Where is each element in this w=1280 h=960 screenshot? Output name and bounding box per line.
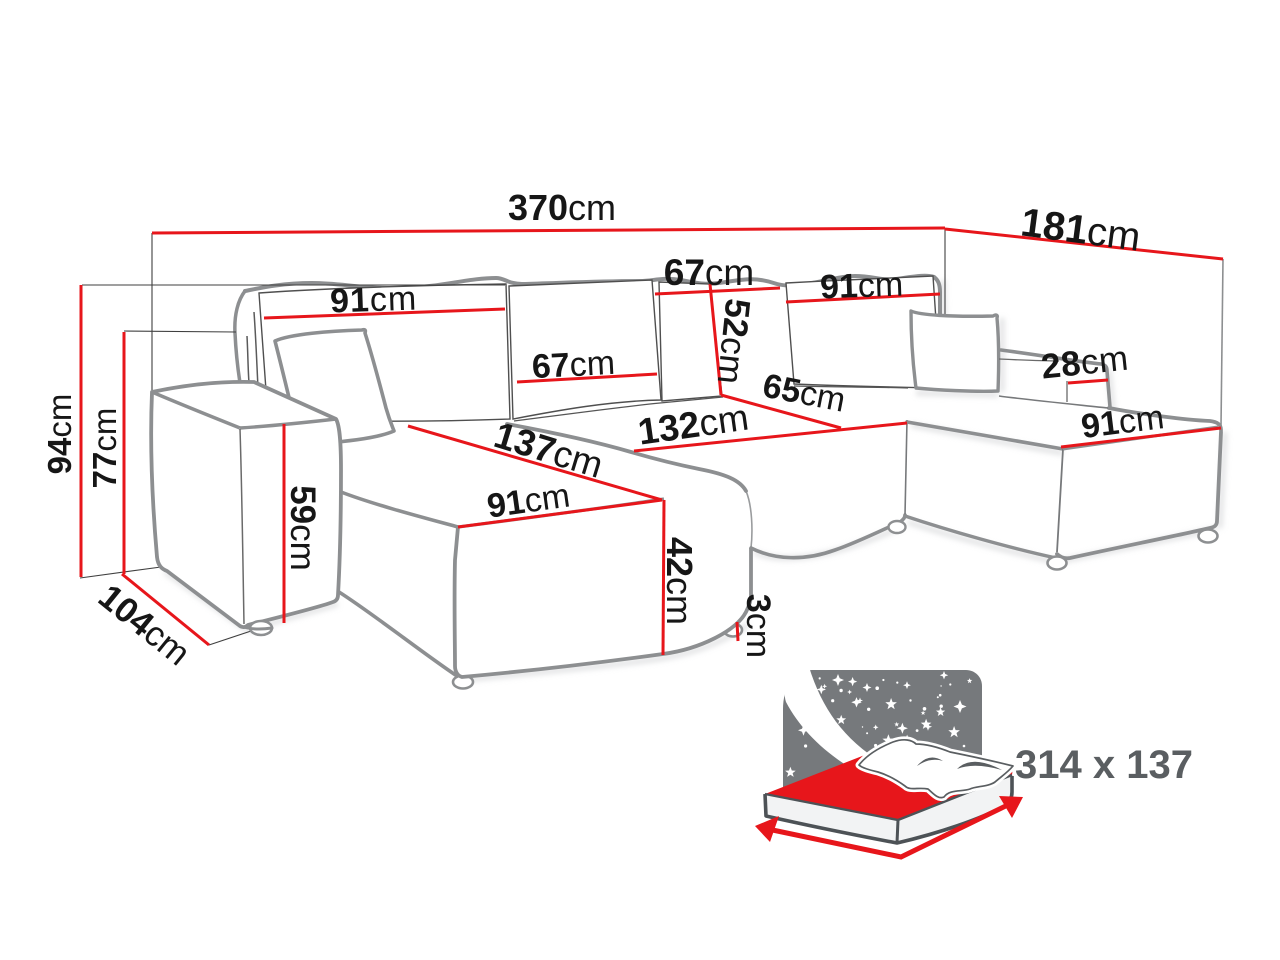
svg-text:314 x 137: 314 x 137 — [1015, 743, 1193, 787]
svg-text:91cm: 91cm — [819, 266, 903, 307]
svg-text:42cm: 42cm — [659, 537, 700, 625]
svg-text:77cm: 77cm — [86, 408, 123, 489]
svg-text:3cm: 3cm — [739, 594, 777, 658]
svg-text:59cm: 59cm — [283, 485, 322, 571]
svg-text:67cm: 67cm — [664, 252, 754, 293]
svg-text:67cm: 67cm — [531, 344, 616, 386]
svg-text:94cm: 94cm — [41, 394, 78, 475]
svg-text:91cm: 91cm — [329, 279, 417, 320]
svg-text:370cm: 370cm — [508, 187, 616, 228]
